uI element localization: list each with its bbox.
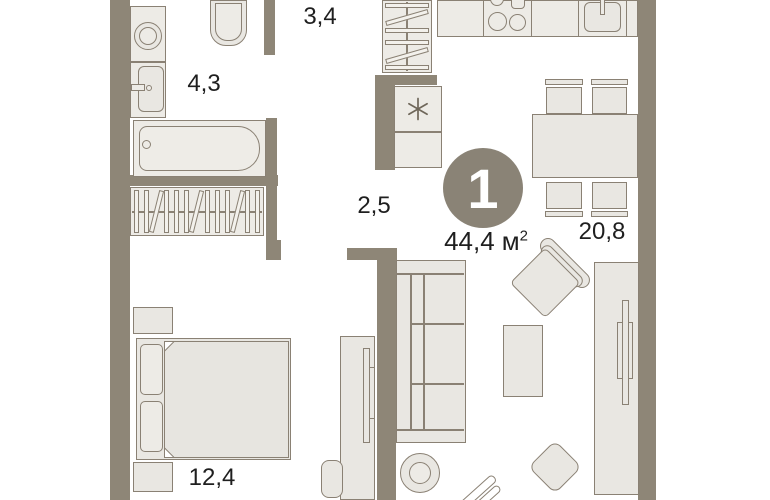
closet-hangers <box>385 3 429 70</box>
fridge-freezer <box>394 86 442 132</box>
hanger-bar-icon <box>245 190 250 233</box>
blanket <box>164 341 289 458</box>
wall-bathroom-right-upper <box>264 0 275 55</box>
wardrobe-hangers <box>134 190 260 233</box>
chair-seat <box>546 182 582 209</box>
hanger-bar-icon <box>205 190 210 233</box>
dining-chair <box>545 79 583 114</box>
hanger-bar-icon <box>385 65 429 70</box>
pillow <box>140 401 163 452</box>
hanger-bar-icon <box>134 190 139 233</box>
area-unit: м <box>502 226 520 256</box>
dining-chair <box>591 79 628 114</box>
sofa-cushion-line <box>410 383 464 385</box>
bathtub-basin <box>139 126 260 171</box>
wall-kitchen-side <box>375 75 395 170</box>
blanket-fold-icon <box>164 341 175 352</box>
hanger-bar-icon <box>385 40 429 45</box>
sofa-back-line <box>423 273 425 429</box>
hanger-bar-icon <box>164 190 169 233</box>
chair-seat <box>546 87 582 114</box>
burner-icon <box>488 12 507 31</box>
area-superscript: 2 <box>520 227 528 244</box>
area-value: 44,4 <box>444 226 495 256</box>
nightstand <box>133 307 173 334</box>
armchair-partial <box>459 472 513 500</box>
unit-badge: 1 <box>443 148 523 228</box>
kitchen-faucet-icon <box>600 0 605 15</box>
chair-back <box>591 79 628 85</box>
coffee-table <box>503 325 543 397</box>
hanger-bar-icon <box>385 28 429 33</box>
sofa <box>396 260 466 443</box>
washer-drum-inner-icon <box>139 27 157 45</box>
wall-left <box>110 0 130 500</box>
faucet-icon <box>131 84 145 91</box>
chair-back <box>545 211 583 217</box>
hanger-bar-icon <box>215 190 220 233</box>
room-label-corridor: 2,5 <box>348 192 400 220</box>
kitchen-cabinet <box>394 132 442 168</box>
sofa-armrest-line <box>397 429 464 431</box>
sofa-cushion-line <box>410 323 464 325</box>
hanger-bar-icon <box>385 3 429 8</box>
bedroom-tv-mount-icon <box>369 367 375 419</box>
unit-number: 1 <box>467 156 498 221</box>
freezer-snowflake-icon <box>406 97 430 121</box>
hanger-bar-icon <box>230 190 245 233</box>
pillow <box>140 344 163 395</box>
burner-icon <box>509 14 526 31</box>
burner-icon <box>511 0 525 9</box>
chair-back <box>591 211 628 217</box>
chair-seat <box>592 182 627 209</box>
nightstand <box>133 462 173 492</box>
hanger-bar-icon <box>149 190 164 233</box>
hanger-bar-icon <box>385 47 429 64</box>
hanger-bar-icon <box>225 190 230 233</box>
hanger-bar-icon <box>144 190 149 233</box>
hanger-bar-icon <box>255 190 260 233</box>
faucet-knob-icon <box>146 85 152 91</box>
room-label-bedroom: 12,4 <box>180 464 244 492</box>
room-label-bathroom: 4,3 <box>178 70 230 98</box>
hanger-bar-icon <box>385 9 429 26</box>
room-label-living-kitchen: 20,8 <box>570 218 634 246</box>
side-table-inner-icon <box>409 462 431 484</box>
room-label-hallway: 3,4 <box>294 3 346 31</box>
hanger-bar-icon <box>189 190 204 233</box>
chair-seat <box>592 87 627 114</box>
dining-table <box>532 114 638 178</box>
dining-chair <box>591 180 628 217</box>
sofa-armrest-line <box>397 273 464 275</box>
floor-plan: 4,3 3,4 2,5 <box>0 0 770 500</box>
bathtub-drain-icon <box>142 140 151 149</box>
wall-bedroom-door-stub <box>266 240 281 260</box>
desk-chair <box>321 460 343 498</box>
wall-right <box>638 0 656 500</box>
toilet-bowl-icon <box>215 3 242 41</box>
wall-living-bedroom-vertical <box>377 248 396 500</box>
tv-icon <box>622 300 629 405</box>
dining-chair <box>545 180 583 217</box>
pouf <box>528 440 582 494</box>
hanger-bar-icon <box>174 190 179 233</box>
blanket-fold-icon <box>164 447 175 458</box>
sofa-back-line <box>410 273 412 429</box>
hanger-bar-icon <box>184 190 189 233</box>
chair-back <box>545 79 583 85</box>
